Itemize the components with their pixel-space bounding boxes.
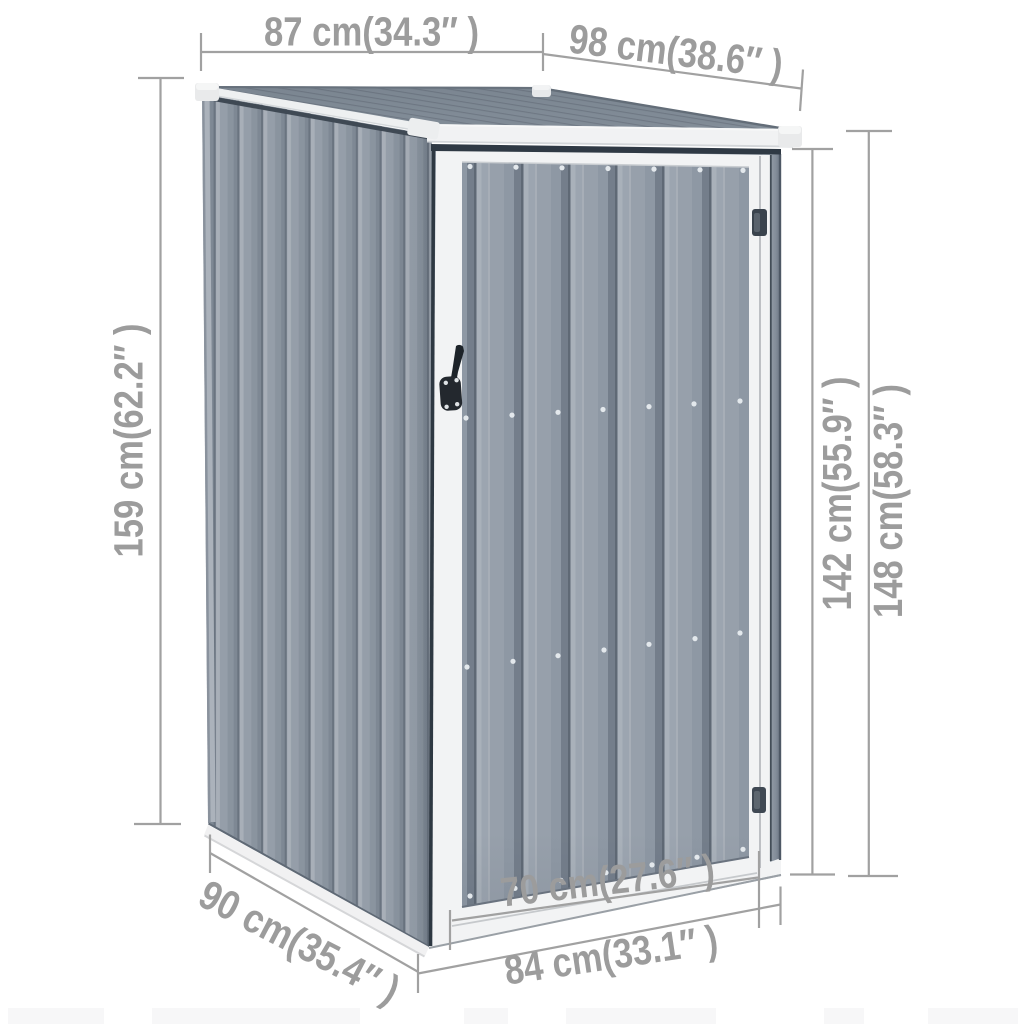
svg-text:148 cm(58.3″ ): 148 cm(58.3″ ) <box>865 384 911 618</box>
svg-text:142 cm(55.9″ ): 142 cm(55.9″ ) <box>814 377 860 611</box>
svg-text:159 cm(62.2″ ): 159 cm(62.2″ ) <box>106 324 152 558</box>
svg-text:87 cm(34.3″ ): 87 cm(34.3″ ) <box>264 9 479 55</box>
